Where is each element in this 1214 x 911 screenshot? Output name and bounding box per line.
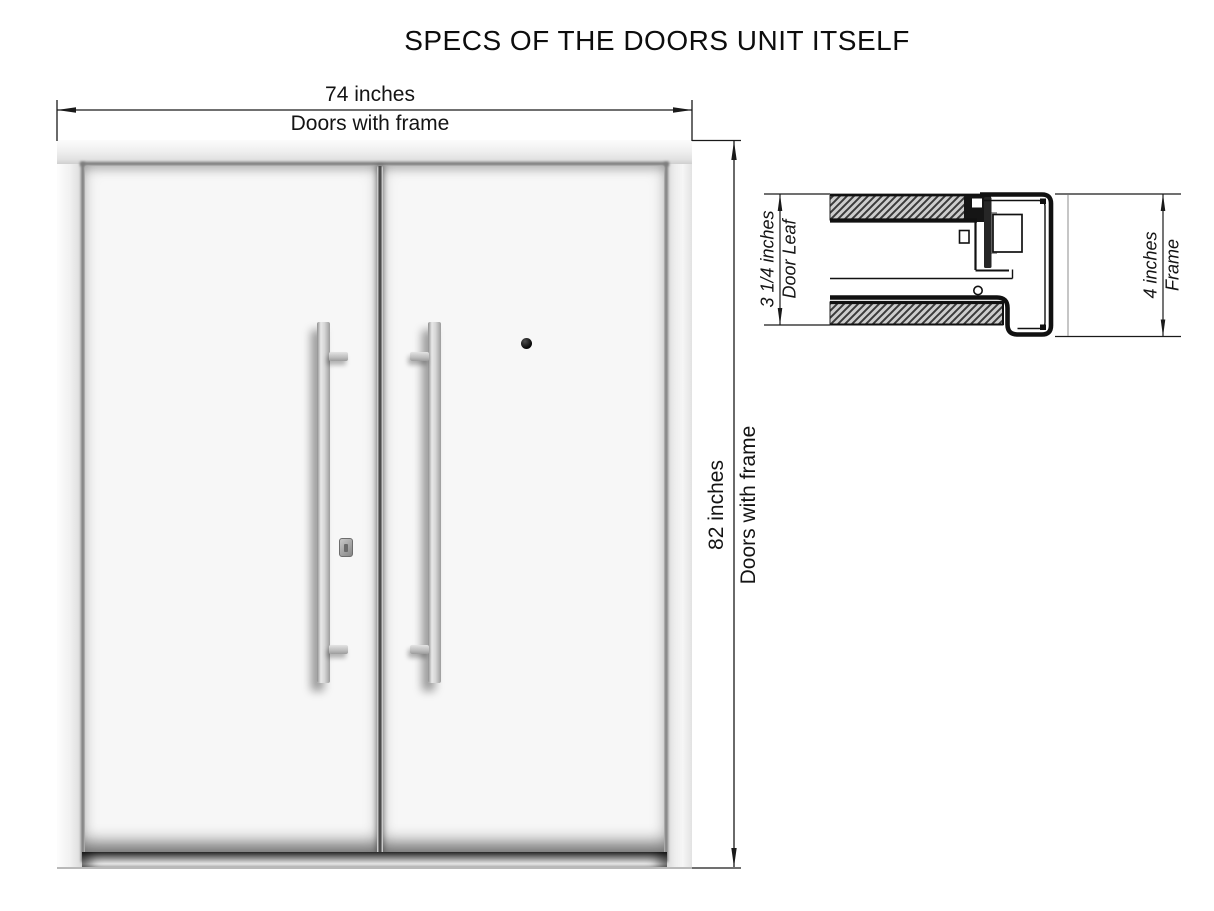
door-frame-left-jamb: [57, 140, 83, 869]
frame-bottom-edge: [57, 867, 692, 869]
leaf-bottom-skin-hatch: [830, 302, 1003, 325]
frame-right-inner-edge: [664, 162, 668, 862]
drawing-title: SPECS OF THE DOORS UNIT ITSELF: [404, 25, 910, 57]
left-door-pull-handle: [317, 322, 330, 683]
frame-seal: [992, 212, 998, 254]
frame-depth-label: Frame: [1163, 239, 1184, 291]
frame-profile-outline: [830, 195, 1051, 335]
arrow-left: [57, 107, 76, 112]
leaf-thickness-label: Door Leaf: [780, 219, 801, 298]
right-door-pull-handle: [428, 322, 441, 683]
width-dimension-value: 74 inches: [325, 83, 415, 107]
door-spec-drawing: SPECS OF THE DOORS UNIT ITSELF 74 inches…: [0, 0, 1214, 911]
strike-box: [993, 215, 1022, 253]
lock-cylinder-dot: [521, 338, 532, 349]
left-handle-top-bracket: [329, 352, 348, 361]
frame-profile-inner: [984, 201, 1045, 329]
leaf-top-skin-hatch: [830, 196, 966, 221]
width-dimension-label: Doors with frame: [291, 112, 450, 136]
door-leaf-left: [85, 166, 377, 852]
arrow-up: [731, 141, 736, 160]
leaf-edge-seal: [964, 196, 991, 222]
keyhole-escutcheon: [339, 538, 353, 557]
height-dimension-value: 82 inches: [705, 460, 729, 550]
right-handle-bottom-bracket: [410, 645, 429, 654]
keyhole-slot: [344, 544, 348, 552]
right-handle-top-bracket: [410, 352, 429, 361]
arrow-right: [673, 107, 692, 112]
arrow-down: [731, 848, 736, 867]
frame-depth-value: 4 inches: [1141, 231, 1162, 298]
door-leaf-right: [383, 166, 664, 852]
door-frame-right-jamb: [666, 140, 692, 869]
section-detail: [764, 194, 1181, 337]
height-dimension-label: Doors with frame: [737, 426, 761, 585]
left-handle-bottom-bracket: [329, 645, 348, 654]
door-frame-head: [57, 140, 692, 164]
door-meeting-gap: [377, 166, 383, 852]
screw-hole: [974, 286, 982, 294]
frame-stop-strip: [984, 197, 992, 268]
leaf-thickness-value: 3 1/4 inches: [758, 210, 779, 307]
latch-bolt: [960, 231, 970, 244]
